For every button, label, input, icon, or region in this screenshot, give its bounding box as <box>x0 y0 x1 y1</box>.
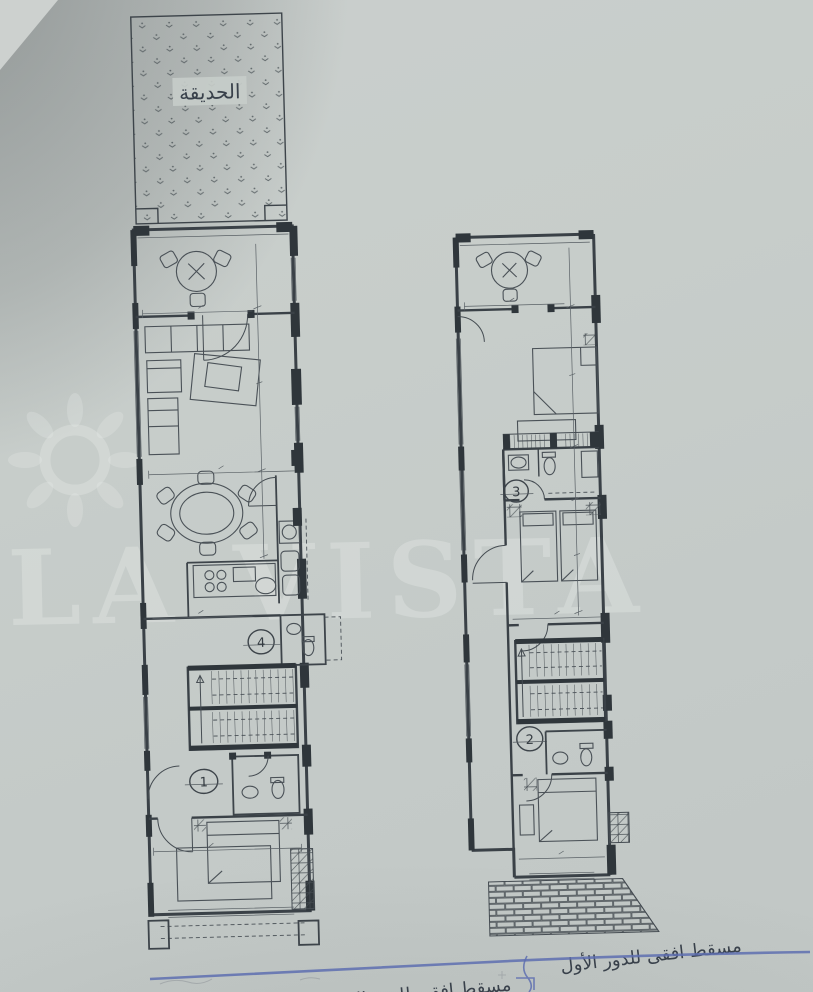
room-marker-2: 2 <box>512 726 547 751</box>
staircase-first <box>515 637 605 724</box>
captions: مسقط افقى للدور الأول مسقط افقي للدور ال… <box>311 934 744 992</box>
entry-door-arc <box>147 766 180 799</box>
svg-text:4: 4 <box>257 636 266 651</box>
caption-ground-floor: مسقط افقي للدور الارضي <box>312 975 512 992</box>
closet <box>291 849 315 910</box>
room-marker-1: 1 <box>184 769 223 794</box>
staircase-ground <box>188 663 298 751</box>
bathroom-hall <box>546 730 608 775</box>
door-arc <box>203 314 249 360</box>
svg-text:1: 1 <box>199 775 208 790</box>
bedroom-1 <box>515 333 599 441</box>
bedroom-ground <box>149 815 314 913</box>
garden-stipple <box>131 13 287 224</box>
bottom-terrace <box>148 916 319 948</box>
watermark-text: LA VISTA <box>6 514 651 650</box>
brick-roof-area <box>489 878 659 936</box>
floor-plan-drawing: LA VISTA الحديقة <box>0 0 813 992</box>
garden-label: الحديقة <box>179 79 241 105</box>
svg-text:2: 2 <box>525 733 534 748</box>
bathroom-entry <box>229 751 300 815</box>
terrace-table-ground <box>159 248 233 307</box>
closet-row <box>503 432 599 450</box>
watermark: LA VISTA <box>6 393 651 650</box>
garden-area: الحديقة <box>131 13 287 224</box>
sun-icon <box>8 393 142 527</box>
photo-of-floor-plan-drawing: LA VISTA الحديقة <box>0 0 813 992</box>
terrace-table-first <box>475 250 543 302</box>
closet <box>609 812 630 843</box>
door-arc <box>458 316 485 343</box>
svg-text:3: 3 <box>512 485 521 500</box>
